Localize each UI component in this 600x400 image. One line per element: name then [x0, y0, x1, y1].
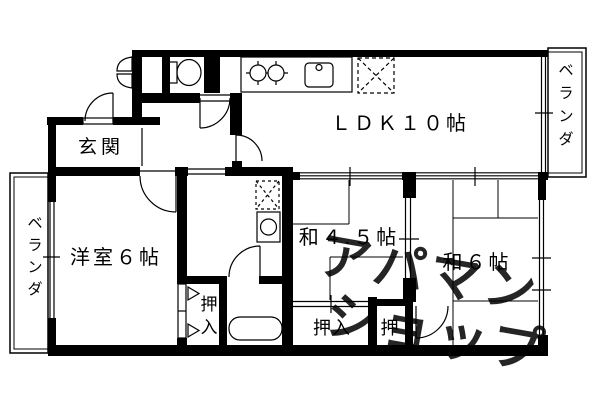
wall	[403, 278, 416, 302]
wall	[177, 176, 187, 277]
floorplan-page: アパマン ショップ	[0, 0, 600, 400]
wall	[177, 276, 227, 284]
wall	[368, 297, 377, 345]
wall	[230, 93, 242, 135]
wall	[48, 167, 140, 176]
floorplan-drawing: アパマン ショップ	[0, 0, 600, 400]
closet-label: 押	[381, 318, 400, 338]
wall	[132, 50, 548, 57]
japanese-room-6-label: 和６帖	[443, 251, 512, 274]
wall	[113, 117, 160, 125]
entrance-label: 玄関	[78, 136, 124, 158]
wall	[48, 118, 56, 202]
japanese-room-4-5-label: 和４.５帖	[299, 226, 400, 249]
wall	[175, 167, 188, 176]
western-room-label: 洋室６帖	[70, 246, 162, 269]
wall	[132, 50, 142, 117]
wall	[282, 167, 293, 345]
wall	[142, 93, 200, 103]
closet-label: 押入	[313, 318, 351, 338]
wall	[538, 172, 548, 180]
wall	[402, 172, 416, 180]
wall	[204, 57, 220, 93]
wall	[538, 335, 548, 345]
door-sill	[83, 118, 113, 124]
wall	[48, 345, 548, 356]
wall	[219, 284, 227, 345]
wall	[377, 299, 405, 306]
wall	[405, 300, 413, 345]
wall	[538, 180, 546, 200]
ldk-label: ＬＤＫ１０帖	[331, 112, 469, 135]
wall	[293, 172, 300, 180]
wall	[403, 180, 416, 198]
